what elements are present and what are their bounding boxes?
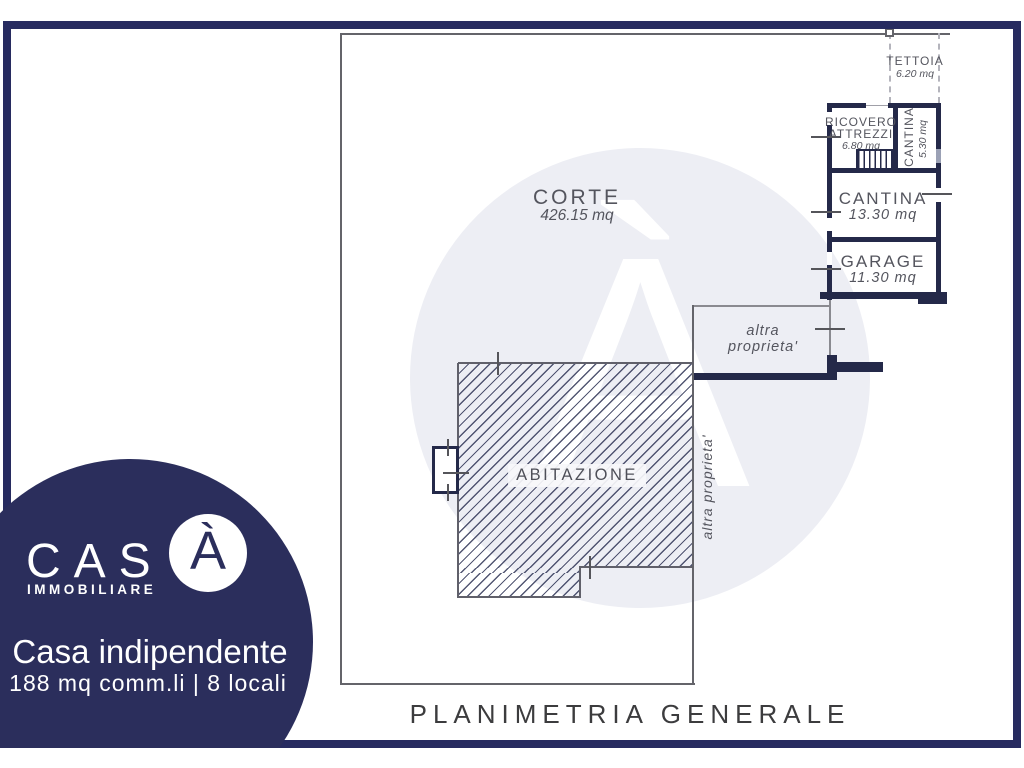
logo-blob — [0, 459, 313, 748]
logo-accent-icon: À — [190, 524, 226, 578]
logo-blob-area: CAS À IMMOBILIARE Casa indipendente 188 … — [0, 0, 1024, 748]
logo-subtitle: IMMOBILIARE — [27, 582, 156, 597]
floor-plan-page: À CORTE 426.15 mq TETTOI — [0, 0, 1024, 768]
listing-specs: 188 mq comm.li | 8 locali — [9, 670, 287, 697]
logo-accent-circle: À — [169, 514, 247, 592]
listing-title: Casa indipendente — [12, 633, 287, 671]
logo-wordmark: CAS — [26, 534, 164, 589]
